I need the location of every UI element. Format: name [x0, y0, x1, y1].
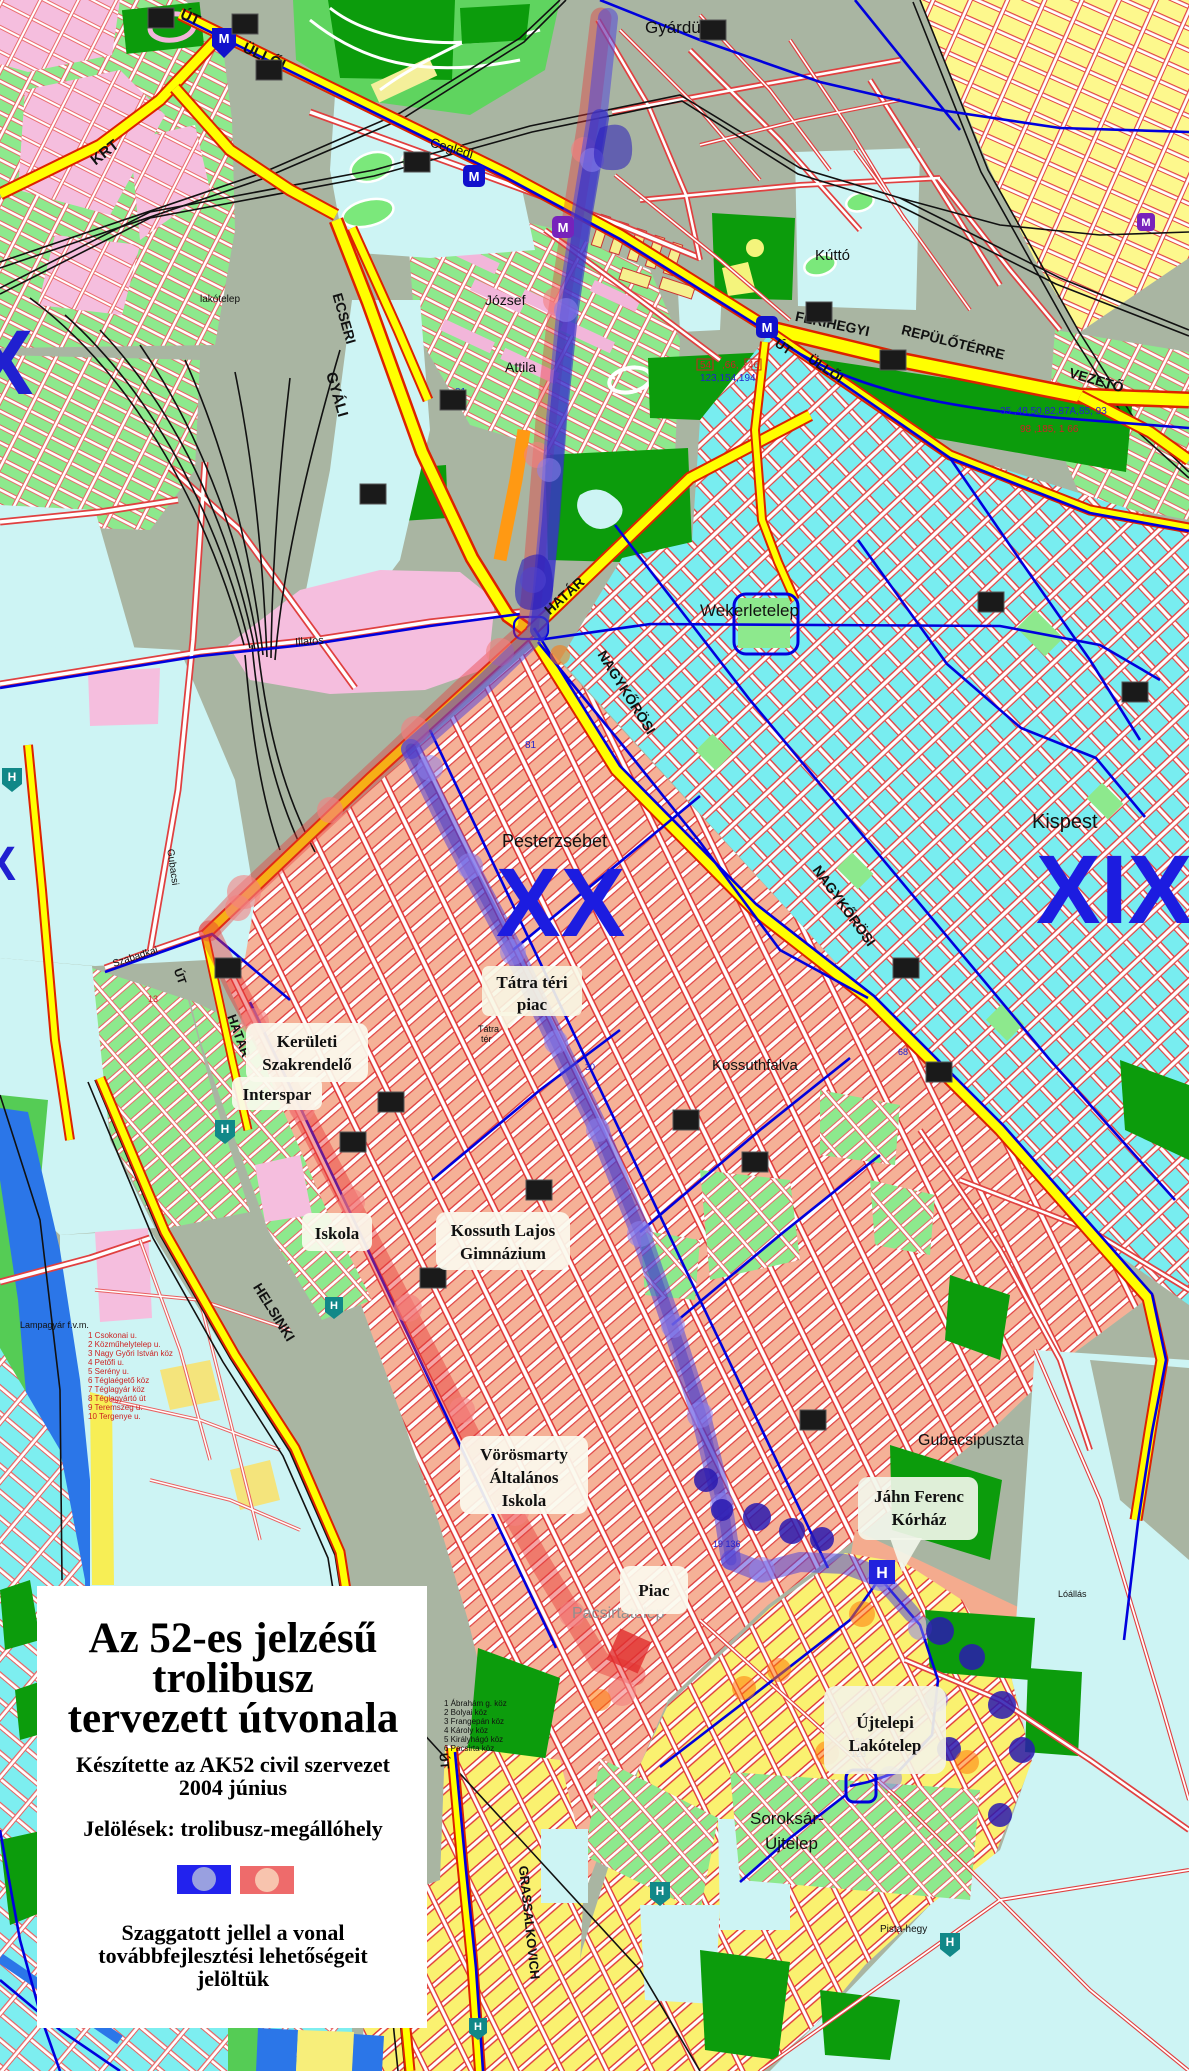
- svg-text:Általános: Általános: [490, 1468, 559, 1487]
- svg-text:továbbfejlesztési lehetőségeit: továbbfejlesztési lehetőségeit: [98, 1943, 368, 1968]
- svg-text:M: M: [762, 320, 773, 335]
- svg-text:9 Teremszeg u.: 9 Teremszeg u.: [88, 1403, 143, 1412]
- svg-text:tervezett útvonala: tervezett útvonala: [68, 1695, 399, 1742]
- svg-text:XX: XX: [496, 848, 625, 957]
- svg-text:Szakrendelő: Szakrendelő: [262, 1055, 352, 1074]
- svg-text:2 Közműhelytelep u.: 2 Közműhelytelep u.: [88, 1340, 161, 1349]
- svg-text:5 Királyhágó köz: 5 Királyhágó köz: [444, 1735, 503, 1744]
- svg-text:Kórház: Kórház: [892, 1510, 947, 1529]
- svg-text:tér: tér: [481, 1034, 492, 1044]
- svg-text:2004 június: 2004 június: [179, 1775, 288, 1800]
- svg-text:Lampagyár f.v.m.: Lampagyár f.v.m.: [20, 1320, 89, 1330]
- svg-text:,66,: ,66,: [722, 360, 739, 371]
- svg-text:Pista-hegy: Pista-hegy: [880, 1924, 927, 1935]
- svg-text:Kúttó: Kúttó: [815, 247, 850, 264]
- svg-text:123,154,194: 123,154,194: [700, 373, 756, 384]
- svg-text:Szaggatott jellel a vonal: Szaggatott jellel a vonal: [121, 1920, 344, 1945]
- svg-text:XIX: XIX: [1036, 835, 1189, 944]
- svg-text:68: 68: [898, 1047, 908, 1057]
- svg-text:1 Ábrahám g. köz: 1 Ábrahám g. köz: [444, 1699, 507, 1708]
- svg-text:54: 54: [700, 360, 712, 371]
- svg-text:X: X: [0, 838, 16, 891]
- svg-text:3 Frangepán köz: 3 Frangepán köz: [444, 1717, 504, 1726]
- svg-text:Soroksár-: Soroksár-: [750, 1809, 824, 1828]
- svg-text:7 Téglagyár köz: 7 Téglagyár köz: [88, 1385, 145, 1394]
- svg-text:6 Téglaégető köz: 6 Téglaégető köz: [88, 1376, 149, 1385]
- svg-text:35 ,48,50,82,87A,85, 93: 35 ,48,50,82,87A,85, 93: [1000, 406, 1107, 417]
- svg-text:Lóállás: Lóállás: [1058, 1589, 1087, 1599]
- svg-text:3 Nagy Győri István köz: 3 Nagy Győri István köz: [88, 1349, 173, 1358]
- svg-text:30: 30: [585, 1062, 595, 1072]
- svg-text:81: 81: [525, 740, 537, 751]
- svg-text:Attila: Attila: [505, 359, 536, 375]
- svg-text:H: H: [656, 1884, 665, 1898]
- svg-text:Gimnázium: Gimnázium: [460, 1244, 546, 1263]
- svg-text:jelöltük: jelöltük: [196, 1966, 270, 1991]
- svg-text:Kossuth Lajos: Kossuth Lajos: [451, 1221, 556, 1240]
- svg-text:4 Petőfi u.: 4 Petőfi u.: [88, 1358, 124, 1367]
- svg-text:46: 46: [748, 360, 760, 371]
- svg-text:Wekerletelep: Wekerletelep: [700, 601, 799, 620]
- svg-text:Kispest: Kispest: [1032, 811, 1098, 833]
- svg-text:H: H: [876, 1565, 888, 1582]
- svg-text:Tátra: Tátra: [478, 1024, 499, 1034]
- svg-text:lakótelep: lakótelep: [200, 294, 240, 305]
- svg-text:Iskola: Iskola: [315, 1224, 360, 1243]
- svg-text:Újtelep: Újtelep: [765, 1834, 818, 1853]
- svg-text:19 136: 19 136: [713, 1539, 741, 1549]
- svg-text:H: H: [330, 1300, 338, 1312]
- svg-text:4 Károly köz: 4 Károly köz: [444, 1726, 488, 1735]
- svg-text:X: X: [0, 312, 33, 414]
- svg-text:Piac: Piac: [638, 1581, 670, 1600]
- svg-text:Interspar: Interspar: [243, 1085, 312, 1104]
- svg-text:H: H: [946, 1935, 955, 1949]
- svg-text:H: H: [8, 770, 17, 784]
- svg-text:Készítette az AK52 civil szerv: Készítette az AK52 civil szervezet: [76, 1752, 391, 1777]
- svg-text:M: M: [558, 220, 569, 235]
- svg-text:5 Serény u.: 5 Serény u.: [88, 1367, 129, 1376]
- svg-text:Lakótelep: Lakótelep: [849, 1736, 922, 1755]
- svg-text:Újtelepi: Újtelepi: [856, 1713, 914, 1732]
- svg-text:Jelölések: trolibusz-megállóhe: Jelölések: trolibusz-megállóhely: [83, 1816, 383, 1841]
- svg-text:H: H: [474, 2021, 482, 2033]
- svg-text:1 Csokonai u.: 1 Csokonai u.: [88, 1331, 137, 1340]
- svg-text:Vörösmarty: Vörösmarty: [480, 1445, 568, 1464]
- svg-text:piac: piac: [517, 995, 548, 1014]
- svg-text:Iskola: Iskola: [502, 1491, 547, 1510]
- svg-text:József: József: [485, 292, 526, 308]
- svg-text:Kerületi: Kerületi: [277, 1032, 338, 1051]
- svg-text:H: H: [221, 1122, 230, 1136]
- svg-text:Jáhn Ferenc: Jáhn Ferenc: [874, 1487, 964, 1506]
- svg-text:Tátra téri: Tátra téri: [496, 973, 568, 992]
- svg-text:M: M: [1141, 217, 1150, 229]
- svg-text:10 Tergenye u.: 10 Tergenye u.: [88, 1412, 141, 1421]
- svg-text:8 Téglagyártó út: 8 Téglagyártó út: [88, 1394, 146, 1403]
- svg-text:M: M: [469, 169, 480, 184]
- svg-text:Illatos: Illatos: [295, 635, 325, 649]
- svg-text:98 ,185, 1 66: 98 ,185, 1 66: [1020, 424, 1079, 435]
- svg-text:ÚT: ÚT: [436, 1752, 453, 1770]
- svg-text:2 Bolyai köz: 2 Bolyai köz: [444, 1708, 487, 1717]
- svg-text:Pesterzsébet: Pesterzsébet: [502, 831, 607, 851]
- svg-text:13: 13: [148, 994, 158, 1004]
- svg-text:M: M: [219, 31, 230, 46]
- svg-text:Kossuthfalva: Kossuthfalva: [712, 1057, 799, 1074]
- svg-text:6 Pacsirta köz: 6 Pacsirta köz: [444, 1744, 494, 1753]
- svg-text:Gubacsipuszta: Gubacsipuszta: [918, 1432, 1024, 1449]
